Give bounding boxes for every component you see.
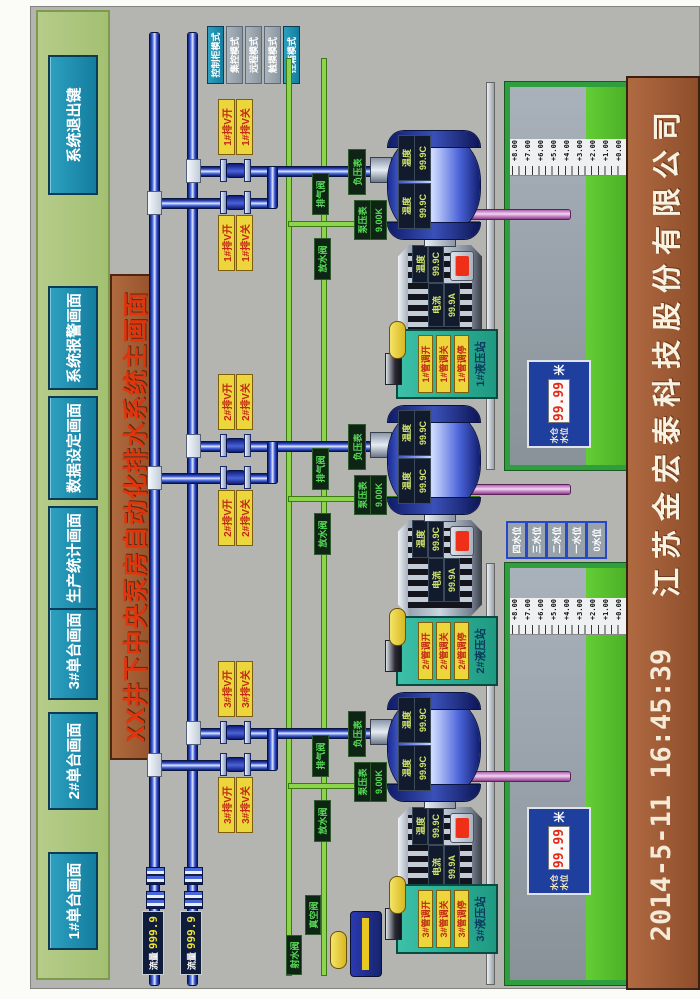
riser-pipe-b — [151, 761, 277, 770]
pump-temp1-label: 温度 — [398, 458, 415, 504]
pipe-valve-open-button[interactable]: 3#管调开 — [418, 890, 433, 948]
pump-gauge-label: 泵压表 — [354, 762, 371, 802]
motor-current-label: 电流 — [428, 558, 444, 602]
pump-temp2-value: 99.9C — [414, 135, 431, 181]
valve-open-tag: 2#排V开 — [218, 490, 235, 546]
motor-temp-value: 99.9C — [428, 807, 444, 845]
flow-meter-value: 999.9 — [185, 916, 198, 949]
valve-open-tag: 1#排V开 — [218, 215, 235, 271]
motor-temp-value: 99.9C — [428, 520, 444, 558]
motor-run-indicator[interactable] — [450, 813, 474, 843]
readout-label-line2: 水位 — [560, 428, 569, 444]
readout-label-line2: 水位 — [560, 875, 569, 891]
pipe-valve-stop-button[interactable]: 2#管调停 — [454, 622, 469, 680]
footer-bar: 2014-5-11 16:45:39 江苏金宏泰科技股份有限公司 — [626, 76, 700, 990]
vacuum-gauge-label: 负压表 — [348, 711, 366, 757]
pipe-valve-stop-button[interactable]: 1#管调停 — [454, 335, 469, 393]
pipe-tee — [147, 466, 162, 490]
pump-temp1-label: 温度 — [398, 183, 415, 229]
motor-temp-label: 温度 — [412, 807, 428, 845]
motor-temp-label: 温度 — [412, 245, 428, 283]
hydraulic-station-title: 2#液压站 — [472, 618, 488, 684]
gate-valve-b — [226, 195, 245, 210]
riser-pipe-b — [151, 199, 277, 208]
motor-run-indicator[interactable] — [450, 526, 474, 556]
pipe-tee — [186, 721, 201, 745]
water-level-value: 99.99 — [548, 827, 570, 871]
pump-gauge-label: 泵压表 — [354, 200, 371, 240]
pump-temp2-value: 99.9C — [414, 410, 431, 456]
flow-meter-label: 流量 — [147, 952, 160, 970]
pump-temp1-label: 温度 — [398, 745, 415, 791]
jet-valve-label: 射水阀 — [286, 935, 302, 975]
suction-pipe — [466, 210, 570, 219]
pipe-valve-close-button[interactable]: 3#管调关 — [436, 890, 451, 948]
hydraulic-station-1: 1#管调开 1#管调关 1#管调停 1#液压站 — [396, 329, 498, 399]
pump-unit-2: 2#排V开 2#排V关 2#排V开 2#排V关 排气阀 放水阀 负压表 泵压表 … — [0, 324, 600, 616]
hydraulic-station-title: 1#液压站 — [472, 331, 488, 397]
motor-current-label: 电流 — [428, 845, 444, 889]
pump-unit-1: 1#排V开 1#排V关 1#排V开 1#排V关 排气阀 放水阀 负压表 泵压表 … — [0, 49, 600, 341]
motor-current-value: 99.9A — [444, 845, 460, 889]
valve-open-tag: 3#排V开 — [218, 661, 235, 717]
flow-meter-pipe1: 流量 999.9 — [142, 911, 164, 975]
drain-valve-label: 放水阀 — [314, 513, 331, 555]
valve-close-tag: 2#排V关 — [236, 490, 253, 546]
scale-tick-label: +0.00 — [615, 599, 624, 625]
gate-valve-a — [226, 438, 245, 453]
jet-pump-device — [389, 321, 406, 359]
flow-meter-label: 流量 — [185, 952, 198, 970]
air-valve-label: 排气阀 — [312, 173, 329, 215]
level-button-1[interactable]: 一水位 — [566, 521, 587, 559]
water-level-value: 99.99 — [548, 380, 570, 424]
water-level-readout-left: 水仓 水位 99.99 米 — [527, 807, 591, 895]
motor-current-value: 99.9A — [444, 558, 460, 602]
pump-gauge-value: 9.00K — [370, 475, 387, 515]
valve-open-tag: 1#排V开 — [218, 99, 235, 155]
datetime-display: 2014-5-11 16:45:39 — [646, 630, 677, 960]
valve-close-tag: 1#排V关 — [236, 99, 253, 155]
pump-temp2-label: 温度 — [398, 135, 415, 181]
valve-close-tag: 2#排V关 — [236, 374, 253, 430]
pipe-valve-close-button[interactable]: 1#管调关 — [436, 335, 451, 393]
vacuum-gauge-label: 负压表 — [348, 149, 366, 195]
drain-valve-label: 放水阀 — [314, 238, 331, 280]
rotated-hmi-photo: 1#单台画面 2#单台画面 3#单台画面 生产统计画面 数据设定画面 系统报警画… — [0, 0, 700, 999]
level-button-3[interactable]: 三水位 — [526, 521, 547, 559]
pipe-valve-open-button[interactable]: 1#管调开 — [418, 335, 433, 393]
motor-current-label: 电流 — [428, 283, 444, 327]
level-button-2[interactable]: 二水位 — [546, 521, 567, 559]
pump-gauge-value: 9.00K — [370, 762, 387, 802]
flow-meter-pipe2: 流量 999.9 — [180, 911, 202, 975]
riser-elbow — [268, 442, 277, 483]
pump-temp1-value: 99.9C — [414, 458, 431, 504]
pipe-tee — [186, 434, 201, 458]
company-name: 江苏金宏泰科技股份有限公司 — [644, 80, 686, 620]
valve-b-flange — [244, 753, 251, 776]
hydraulic-station-title: 3#液压站 — [472, 886, 488, 952]
gate-valve-b — [226, 470, 245, 485]
valve-a-flange — [244, 434, 251, 457]
hmi-landscape-stage: 1#单台画面 2#单台画面 3#单台画面 生产统计画面 数据设定画面 系统报警画… — [0, 0, 700, 999]
jet-pump-device — [330, 931, 347, 969]
air-valve-label: 排气阀 — [312, 735, 329, 777]
riser-elbow — [268, 729, 277, 770]
valve-open-tag: 3#排V开 — [218, 777, 235, 833]
level-button-0[interactable]: 0水位 — [586, 521, 607, 559]
motor-current-value: 99.9A — [444, 283, 460, 327]
pump-temp2-label: 温度 — [398, 697, 415, 743]
vacuum-gauge-label: 负压表 — [348, 424, 366, 470]
pump-temp2-value: 99.9C — [414, 697, 431, 743]
readout-label-line1: 水仓 — [550, 875, 559, 891]
riser-elbow — [268, 167, 277, 208]
water-level-unit: 米 — [551, 365, 567, 376]
gate-valve-a — [226, 163, 245, 178]
jet-pump-device — [389, 876, 406, 914]
valve-close-tag: 3#排V关 — [236, 661, 253, 717]
valve-b-flange — [244, 191, 251, 214]
hydraulic-station-2: 2#管调开 2#管调关 2#管调停 2#液压站 — [396, 616, 498, 686]
vacuum-pump-machine — [350, 911, 382, 977]
pipe-valve-stop-button[interactable]: 3#管调停 — [454, 890, 469, 948]
pump-gauge-label: 泵压表 — [354, 475, 371, 515]
gate-valve-a — [226, 725, 245, 740]
pump-gauge-value: 9.00K — [370, 200, 387, 240]
pump-temp1-value: 99.9C — [414, 183, 431, 229]
water-level-unit: 米 — [551, 812, 567, 823]
jet-pump-device — [389, 608, 406, 646]
pipe-valve-close-button[interactable]: 2#管调关 — [436, 622, 451, 680]
water-level-readout-right: 水仓 水位 99.99 米 — [527, 360, 591, 448]
scale-tick-label: +1.00 — [602, 140, 611, 166]
pump-temp2-label: 温度 — [398, 410, 415, 456]
valve-a-flange — [244, 159, 251, 182]
riser-pipe-b — [151, 474, 277, 483]
pump-temp1-value: 99.9C — [414, 745, 431, 791]
air-valve-label: 排气阀 — [312, 448, 329, 490]
pipe-valve-open-button[interactable]: 2#管调开 — [418, 622, 433, 680]
valve-b-flange — [244, 466, 251, 489]
pump-unit-3: 3#排V开 3#排V关 3#排V开 3#排V关 排气阀 放水阀 负压表 泵压表 … — [0, 611, 600, 903]
motor-temp-label: 温度 — [412, 520, 428, 558]
pipe-tee — [186, 159, 201, 183]
pipe-tee — [147, 191, 162, 215]
valve-a-flange — [244, 721, 251, 744]
hydraulic-station-3: 3#管调开 3#管调关 3#管调停 3#液压站 — [396, 884, 498, 954]
readout-label-line1: 水仓 — [550, 428, 559, 444]
level-button-4[interactable]: 四水位 — [506, 521, 527, 559]
scale-tick-label: +1.00 — [602, 599, 611, 625]
suction-pipe — [466, 485, 570, 494]
drain-valve-label: 放水阀 — [314, 800, 331, 842]
valve-close-tag: 3#排V关 — [236, 777, 253, 833]
motor-temp-value: 99.9C — [428, 245, 444, 283]
motor-run-indicator[interactable] — [450, 251, 474, 281]
pipe-tee — [147, 753, 162, 777]
gate-valve-b — [226, 757, 245, 772]
flow-meter-value: 999.9 — [147, 916, 160, 949]
valve-close-tag: 1#排V关 — [236, 215, 253, 271]
valve-open-tag: 2#排V开 — [218, 374, 235, 430]
suction-pipe — [466, 772, 570, 781]
scale-tick-label: +0.00 — [615, 140, 624, 166]
